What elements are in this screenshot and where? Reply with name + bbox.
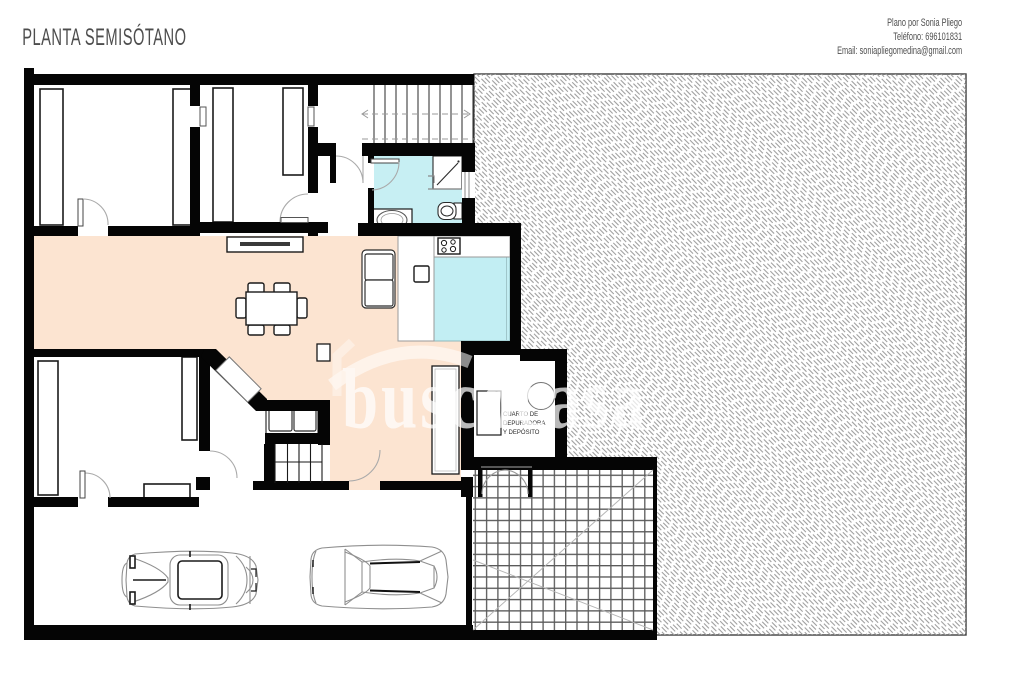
svg-text:buscocasa: buscocasa — [342, 352, 647, 447]
svg-text:PLANTA SEMISÓTANO: PLANTA SEMISÓTANO — [22, 23, 186, 51]
svg-text:Email: soniapliegomedina@gmail: Email: soniapliegomedina@gmail.com — [837, 45, 962, 57]
svg-text:Plano por Sonia Pliego: Plano por Sonia Pliego — [887, 17, 962, 29]
svg-text:Teléfono: 696101831: Teléfono: 696101831 — [893, 31, 962, 43]
